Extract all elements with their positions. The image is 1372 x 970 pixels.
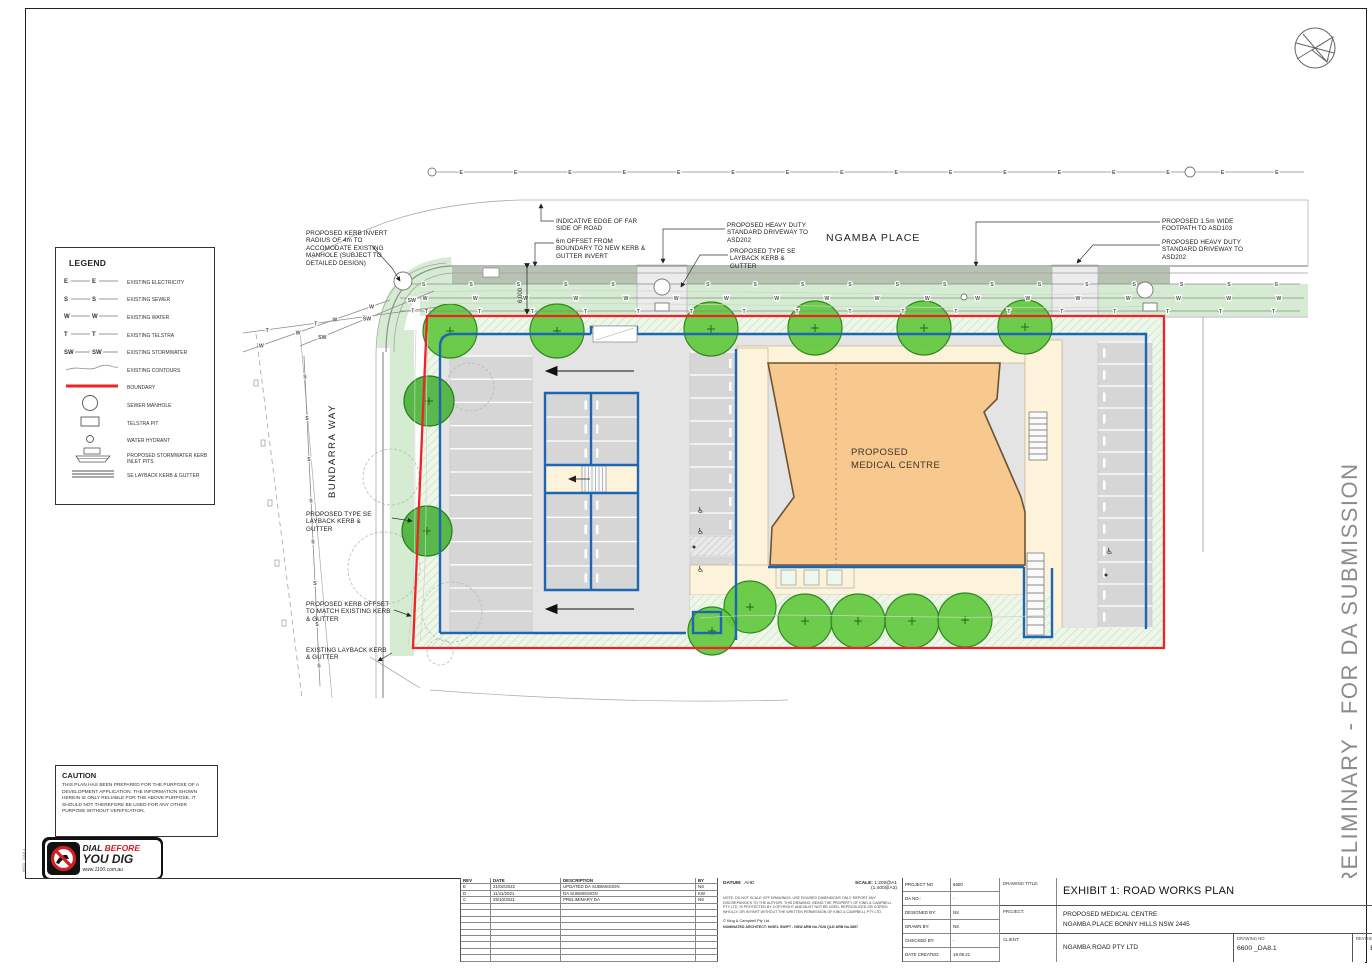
caution-body: THIS PLAN HAS BEEN PREPARED FOR THE PURP… [62, 783, 211, 816]
svg-text:W: W [824, 296, 829, 302]
svg-text:W: W [1126, 296, 1131, 302]
caution-title: CAUTION [62, 771, 211, 780]
svg-text:E: E [840, 170, 844, 176]
central-stair-landing [545, 465, 638, 493]
building-label: PROPOSED MEDICAL CENTRE [851, 447, 940, 473]
svg-text:S: S [307, 457, 311, 463]
svg-text:SW: SW [407, 298, 415, 304]
svg-text:T: T [92, 332, 96, 338]
svg-text:E: E [1003, 170, 1007, 176]
street-label-ngamba-place: NGAMBA PLACE [826, 232, 920, 244]
svg-text:W: W [724, 296, 729, 302]
annotation-kerb-invert: PROPOSED KERB INVERT RADIUS OF 4m TO ACC… [306, 230, 406, 267]
project-label: PROJECT: [1000, 906, 1057, 933]
copyright-note: NOTE: DO NOT SCALE OFF DRAWINGS. USE FIG… [723, 896, 897, 915]
svg-text:W: W [1076, 296, 1081, 302]
svg-text:S: S [64, 297, 68, 303]
nominated-architect: NOMINATED ARCHITECT: NIGEL SWIFT - NSW A… [723, 925, 897, 929]
annotation-existing-layback: EXISTING LAYBACK KERB & GUTTER [306, 647, 388, 662]
svg-text:SW: SW [92, 350, 102, 356]
drawing-number-cell: DRAWING NO 6600 _DA8.1 [1233, 934, 1352, 962]
bollard-dot [693, 546, 696, 549]
no-dig-icon [47, 842, 80, 875]
annotation-layback-top: PROPOSED TYPE SE LAYBACK KERB & GUTTER [730, 248, 810, 270]
svg-text:S: S [469, 282, 473, 288]
svg-text:S: S [1275, 282, 1279, 288]
svg-text:T: T [314, 321, 318, 327]
svg-text:SW: SW [64, 350, 74, 356]
svg-text:S: S [1038, 282, 1042, 288]
annotation-hd-driveway-left: PROPOSED HEAVY DUTY STANDARD DRIVEWAY TO… [727, 222, 819, 244]
offset-dimension-text: 6,000 [518, 288, 524, 303]
svg-text:♿: ♿ [697, 565, 704, 574]
svg-text:W: W [624, 296, 629, 302]
svg-text:W: W [674, 296, 679, 302]
svg-text:S: S [1085, 282, 1089, 288]
svg-text:W: W [92, 314, 98, 320]
annotation-6m-offset: 6m OFFSET FROM BOUNDARY TO NEW KERB & GU… [556, 238, 651, 260]
svg-text:E: E [731, 170, 735, 176]
svg-text:S: S [92, 297, 96, 303]
client-label: CLIENT: [1000, 934, 1057, 962]
svg-text:E: E [1275, 170, 1279, 176]
legend-title: LEGEND [69, 258, 214, 268]
svg-text:W: W [1226, 296, 1231, 302]
annotation-hd-driveway-right: PROPOSED HEAVY DUTY STANDARD DRIVEWAY TO… [1162, 239, 1254, 261]
annotation-layback-left: PROPOSED TYPE SE LAYBACK KERB & GUTTER [306, 511, 388, 533]
legend-panel: LEGEND EE EXISTING ELECTRICITY SS EXISTI… [55, 247, 215, 505]
svg-text:S: S [305, 416, 309, 422]
dial-before-you-dig-logo: DIAL BEFORE YOU DIG www.1100.com.au [42, 837, 163, 880]
drawing-title: EXHIBIT 1: ROAD WORKS PLAN [1057, 878, 1234, 905]
svg-text:S: S [309, 498, 313, 504]
north-arrow-icon [1295, 28, 1335, 68]
svg-text:E: E [786, 170, 790, 176]
annotation-far-edge: INDICATIVE EDGE OF FAR SIDE OF ROAD [556, 218, 651, 233]
svg-text:S: S [801, 282, 805, 288]
svg-text:W: W [423, 296, 428, 302]
svg-text:S: S [311, 540, 315, 546]
svg-text:E: E [92, 279, 96, 285]
title-project-client-block: DRAWING TITLE: EXHIBIT 1: ROAD WORKS PLA… [1000, 878, 1365, 962]
svg-text:S: S [1180, 282, 1184, 288]
svg-text:E: E [514, 170, 518, 176]
dial-before-you-dig-text: DIAL BEFORE YOU DIG www.1100.com.au [80, 844, 140, 872]
svg-text:♿: ♿ [1106, 547, 1113, 556]
svg-text:W: W [925, 296, 930, 302]
svg-text:S: S [422, 282, 426, 288]
revision-table: REVDATEDESCRIPTIONBYE21/02/2022UPDATED D… [460, 878, 718, 962]
svg-text:W: W [369, 305, 374, 311]
svg-text:SW: SW [363, 317, 371, 323]
preliminary-banner: PRELIMINARY - FOR DA SUBMISSION [1337, 462, 1363, 903]
datum-scale-notes: DATUM: AHD SCALE: 1:200@A1 (1:400@A3) NO… [718, 878, 903, 962]
svg-text:E: E [894, 170, 898, 176]
svg-text:W: W [1025, 296, 1030, 302]
svg-text:S: S [1227, 282, 1231, 288]
svg-text:W: W [573, 296, 578, 302]
svg-text:E: E [568, 170, 572, 176]
svg-text:E: E [1221, 170, 1225, 176]
svg-text:S: S [943, 282, 947, 288]
street-label-bundarra-way: BUNDARRA WAY [327, 404, 338, 498]
annotation-kerb-offset: PROPOSED KERB OFFSET TO MATCH EXISTING K… [306, 601, 391, 623]
svg-text:S: S [848, 282, 852, 288]
svg-text:E: E [1166, 170, 1170, 176]
svg-text:E: E [459, 170, 463, 176]
svg-text:♿: ♿ [697, 506, 704, 515]
svg-text:T: T [64, 332, 68, 338]
svg-text:S: S [990, 282, 994, 288]
legend-item: SE LAYBACK KERB & GUTTER [56, 468, 214, 486]
svg-text:W: W [259, 344, 264, 350]
legend-symbol-layback [64, 465, 122, 488]
svg-text:W: W [473, 296, 478, 302]
svg-text:W: W [64, 314, 70, 320]
drawing-sheet: 6600 _DA8.1 [0, 0, 1372, 970]
revision-cell: REVISION E [1352, 934, 1372, 962]
svg-text:S: S [706, 282, 710, 288]
svg-text:E: E [623, 170, 627, 176]
caution-note: CAUTION THIS PLAN HAS BEEN PREPARED FOR … [55, 765, 218, 837]
svg-text:W: W [875, 296, 880, 302]
svg-text:W: W [1176, 296, 1181, 302]
project-fields-table: PROJECT NO6600DA NO.:-DESIGNED BY:NSDRAW… [903, 878, 1000, 962]
svg-text:S: S [313, 581, 317, 587]
svg-text:S: S [611, 282, 615, 288]
svg-text:E: E [677, 170, 681, 176]
svg-text:E: E [1112, 170, 1116, 176]
svg-text:S: S [1132, 282, 1136, 288]
annotation-footpath: PROPOSED 1.5m WIDE FOOTPATH TO ASD103 [1162, 218, 1254, 233]
svg-text:T: T [266, 328, 270, 334]
svg-text:E: E [949, 170, 953, 176]
svg-text:S: S [317, 663, 321, 669]
svg-text:SW: SW [318, 335, 326, 341]
svg-text:W: W [296, 331, 301, 337]
svg-text:♿: ♿ [697, 527, 704, 536]
planter-boxes [776, 567, 854, 588]
bollard-dot [1105, 574, 1108, 577]
svg-text:W: W [1276, 296, 1281, 302]
shared-zone-hatch [690, 536, 737, 556]
drawing-title-label: DRAWING TITLE: [1000, 878, 1057, 905]
svg-text:W: W [774, 296, 779, 302]
svg-text:S: S [896, 282, 900, 288]
svg-text:E: E [1058, 170, 1062, 176]
svg-text:S: S [564, 282, 568, 288]
svg-text:S: S [754, 282, 758, 288]
svg-text:S: S [303, 375, 307, 381]
svg-text:E: E [64, 279, 68, 285]
project-name: PROPOSED MEDICAL CENTRE NGAMBA PLACE BON… [1057, 906, 1190, 933]
svg-text:W: W [975, 296, 980, 302]
client-name: NGAMBA ROAD PTY LTD [1057, 934, 1138, 962]
